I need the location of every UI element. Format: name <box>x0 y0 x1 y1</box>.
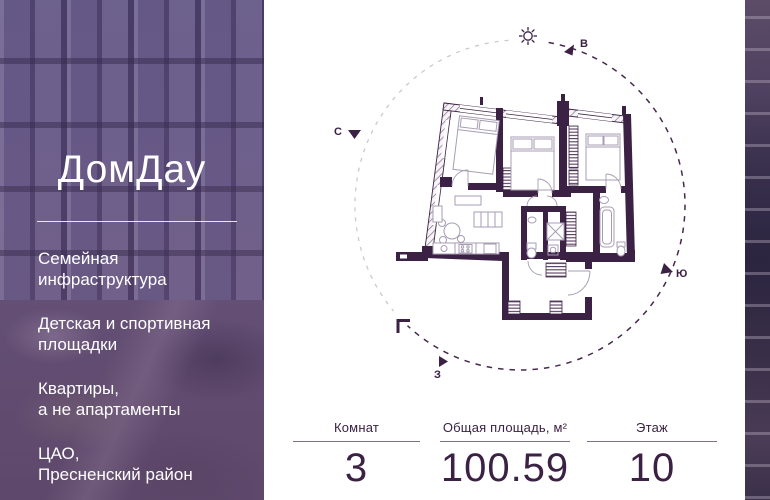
stat-value-rooms: 3 <box>293 446 420 491</box>
wall-notch <box>400 255 407 259</box>
tv-stand <box>455 196 481 205</box>
desk <box>433 206 442 222</box>
arrow-east-icon <box>564 45 574 56</box>
compass-arc-light <box>355 40 509 311</box>
stat-value-area: 100.59 <box>440 446 570 491</box>
stat-column-rooms: Комнат 3 <box>293 420 420 491</box>
stat-value-floor: 10 <box>587 446 717 491</box>
stat-divider <box>587 441 717 442</box>
bed-2 <box>511 137 554 190</box>
logo-divider <box>37 221 237 222</box>
feature-item-family: Семейная инфраструктура <box>38 248 211 290</box>
main-area: В С Ю З <box>264 0 745 500</box>
arrow-north-icon <box>348 130 361 139</box>
direction-label-east: В <box>580 38 588 50</box>
direction-label-west: З <box>434 369 441 381</box>
sun-icon <box>519 27 537 45</box>
bathroom-ensuite <box>600 197 626 257</box>
stat-column-floor: Этаж 10 <box>587 420 717 491</box>
stat-label-floor: Этаж <box>587 420 717 435</box>
dining-table <box>444 223 460 239</box>
stat-label-area: Общая площадь, м² <box>440 420 570 435</box>
right-photo-strip <box>745 0 770 500</box>
direction-label-north: С <box>334 126 342 138</box>
kitchen-counter <box>433 243 499 254</box>
stat-divider <box>293 441 420 442</box>
feature-item-apartments: Квартиры, а не апартаменты <box>38 378 211 420</box>
feature-item-playgrounds: Детская и спортивная площадки <box>38 313 211 355</box>
sidebar: ДомДау Семейная инфраструктура Детская и… <box>0 0 264 500</box>
stat-label-rooms: Комнат <box>293 420 420 435</box>
bed-1 <box>453 116 499 174</box>
stat-divider <box>440 441 570 442</box>
floor-plan <box>396 94 635 320</box>
bed-3 <box>586 134 620 180</box>
sidebar-content: ДомДау Семейная инфраструктура Детская и… <box>0 0 264 500</box>
arrow-west-icon <box>439 356 448 367</box>
feature-item-district: ЦАО, Пресненский район <box>38 443 211 485</box>
bathroom-wc <box>527 217 536 258</box>
listing-card: ДомДау Семейная инфраструктура Детская и… <box>0 0 770 500</box>
stat-column-area: Общая площадь, м² 100.59 <box>440 420 570 491</box>
stats-row: Комнат 3 Общая площадь, м² 100.59 Этаж 1… <box>264 420 745 500</box>
brand-logo: ДомДау <box>0 148 264 192</box>
compass-ring: В С Ю З <box>334 27 687 381</box>
feature-list: Семейная инфраструктура Детская и спорти… <box>38 248 211 485</box>
direction-label-south: Ю <box>676 268 687 280</box>
